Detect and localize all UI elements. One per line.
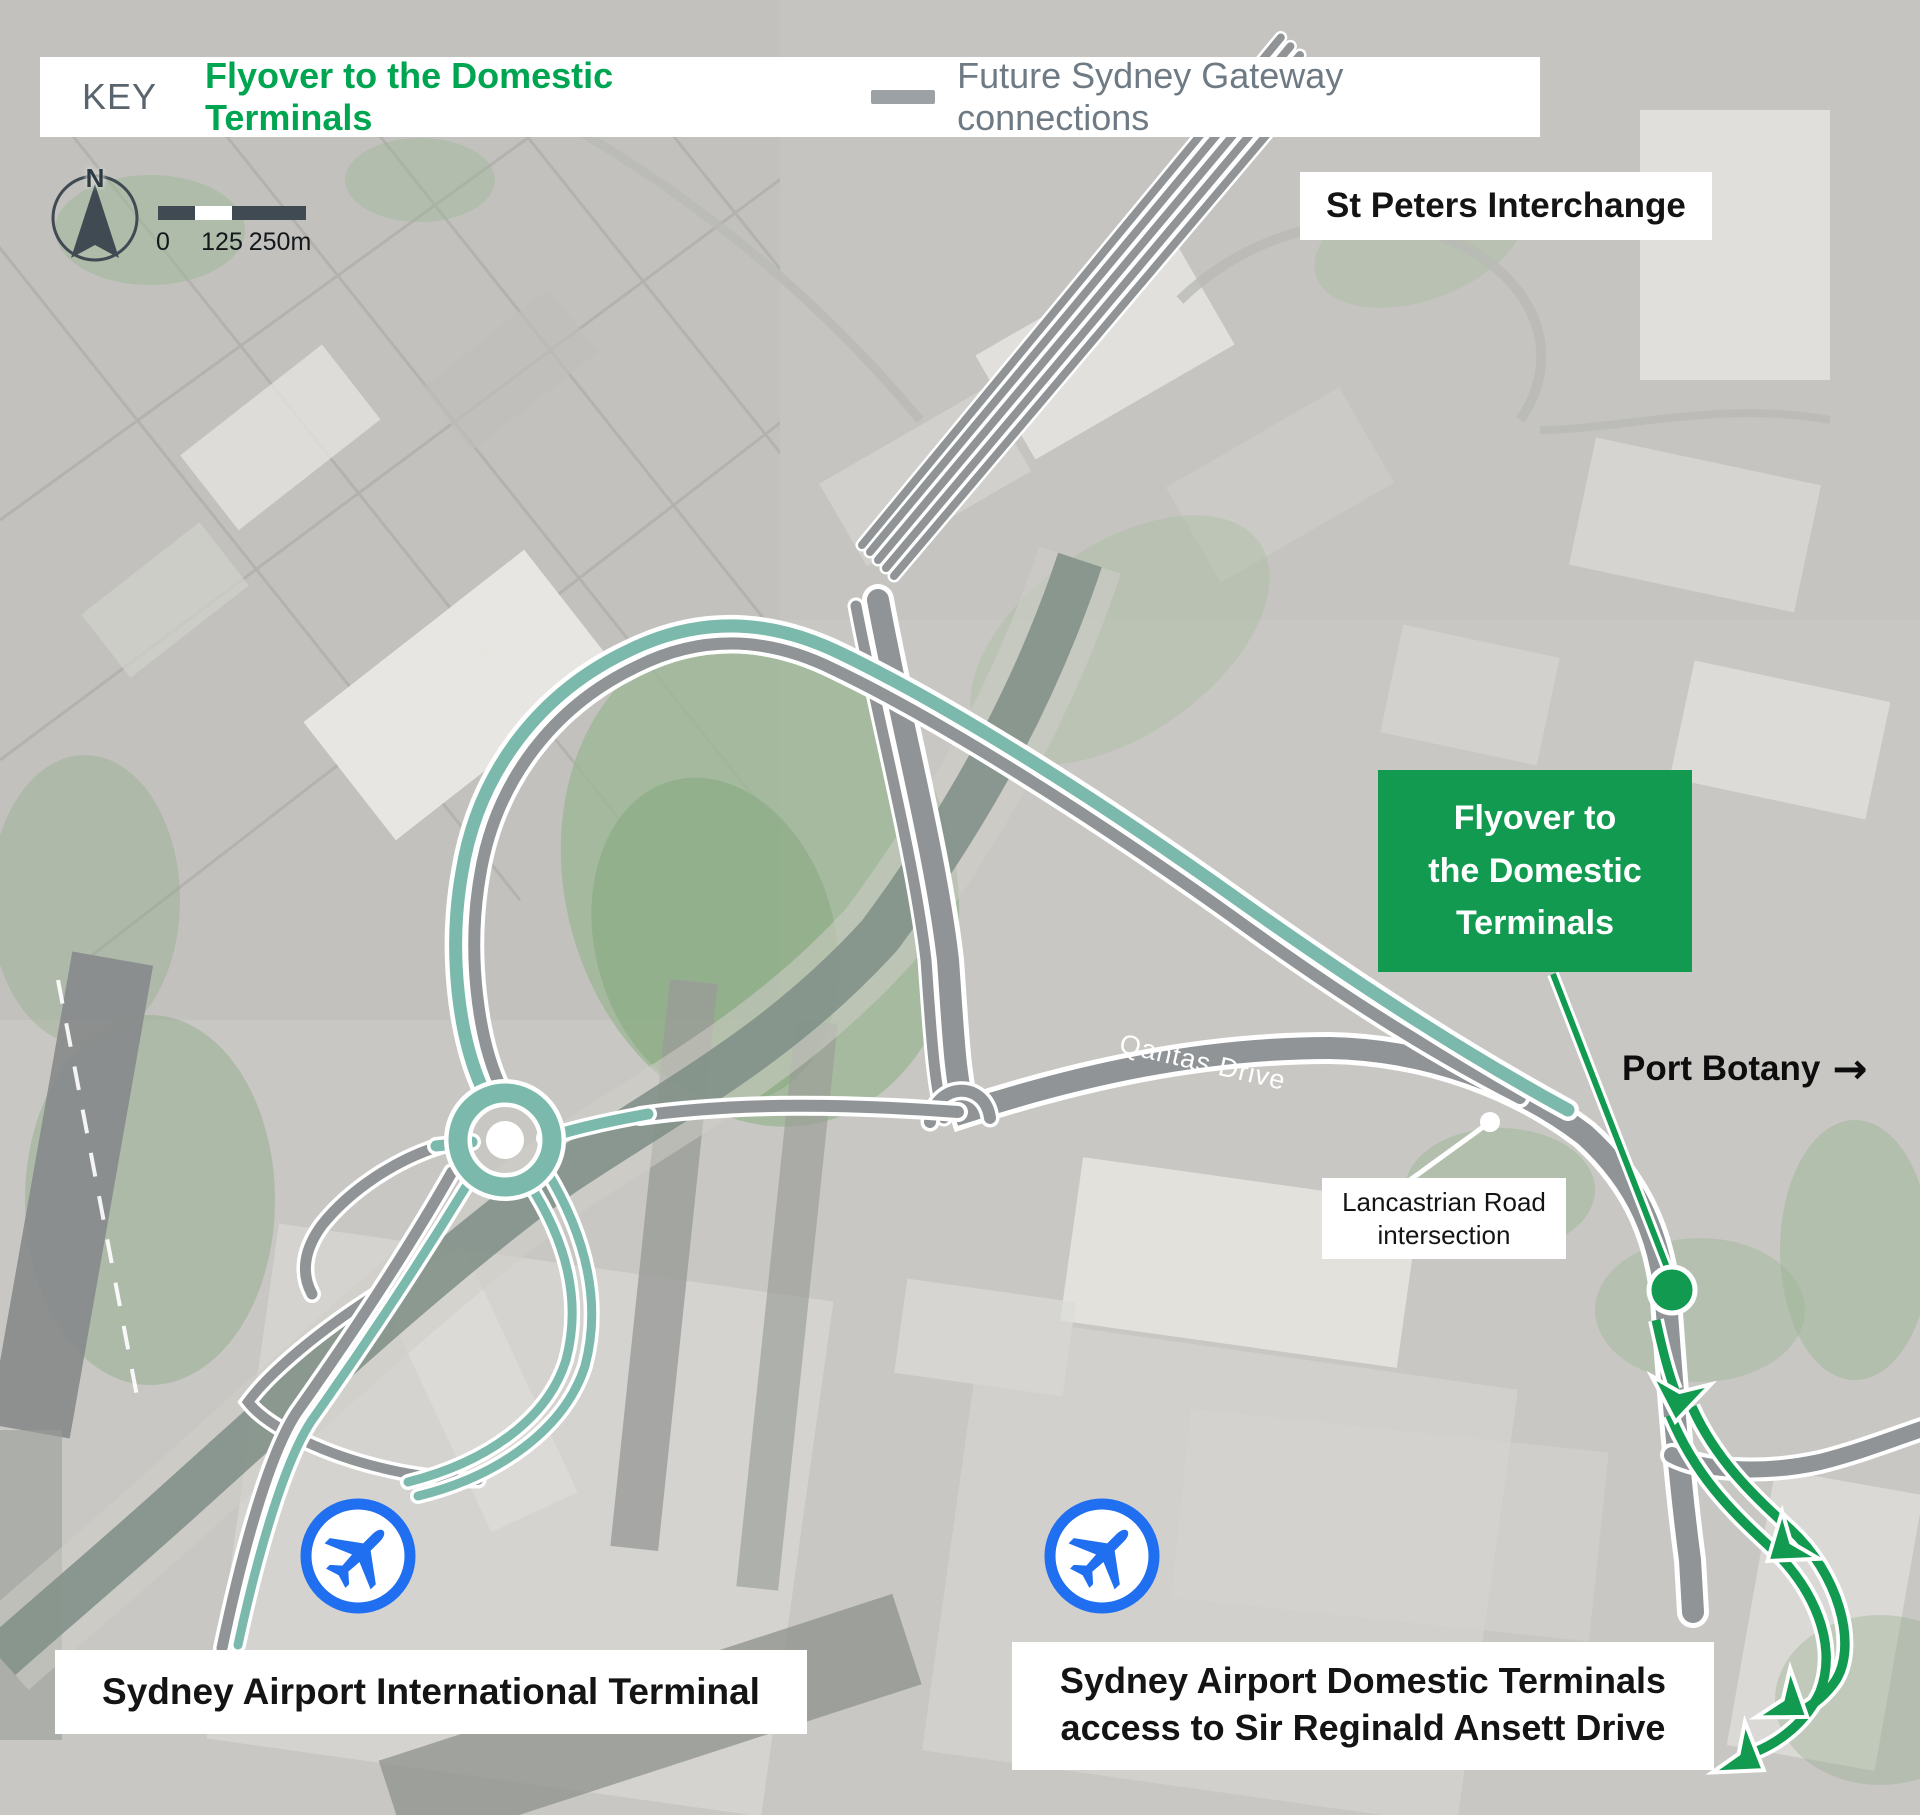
- domestic-line1: Sydney Airport Domestic Terminals: [1012, 1658, 1714, 1705]
- domestic-line2: access to Sir Reginald Ansett Drive: [1012, 1705, 1714, 1752]
- flyover-start-dot: [1649, 1267, 1695, 1313]
- flyover-callout-line1: Flyover to: [1454, 792, 1616, 845]
- port-botany-text: Port Botany: [1622, 1049, 1820, 1089]
- international-terminal-label: Sydney Airport International Terminal: [55, 1650, 807, 1734]
- port-botany-label: Port Botany →: [1622, 1048, 1868, 1090]
- domestic-terminals-label: Sydney Airport Domestic Terminals access…: [1012, 1642, 1714, 1770]
- scale-bar: [158, 206, 306, 220]
- gray-line-swatch-icon: [871, 90, 935, 104]
- key-title: KEY: [82, 76, 157, 118]
- airplane-icon: [1050, 1504, 1154, 1608]
- airplane-icon: [306, 1504, 410, 1608]
- key-flyover-label: Flyover to the Domestic Terminals: [205, 55, 785, 139]
- flyover-callout-line2: the Domestic: [1428, 845, 1642, 898]
- scale-tick-125: 125: [201, 228, 243, 257]
- lancastrian-line1: Lancastrian Road: [1322, 1186, 1566, 1219]
- scale-bar-labels: 0 125 250m: [130, 228, 350, 258]
- compass-north-label: N: [86, 163, 105, 194]
- scale-tick-250: 250m: [249, 228, 312, 257]
- map-canvas: KEY Flyover to the Domestic Terminals Fu…: [0, 0, 1920, 1815]
- lancastrian-dot: [1480, 1112, 1500, 1132]
- key-gateway-label: Future Sydney Gateway connections: [957, 55, 1540, 139]
- map-key: KEY Flyover to the Domestic Terminals Fu…: [40, 57, 1540, 137]
- flyover-callout-line3: Terminals: [1456, 897, 1614, 950]
- flyover-callout: Flyover to the Domestic Terminals: [1378, 770, 1692, 972]
- right-arrow-icon: →: [1832, 1048, 1867, 1090]
- st-peters-label: St Peters Interchange: [1300, 172, 1712, 240]
- lancastrian-label: Lancastrian Road intersection: [1322, 1178, 1566, 1259]
- scale-tick-0: 0: [156, 228, 170, 257]
- lancastrian-line2: intersection: [1322, 1219, 1566, 1252]
